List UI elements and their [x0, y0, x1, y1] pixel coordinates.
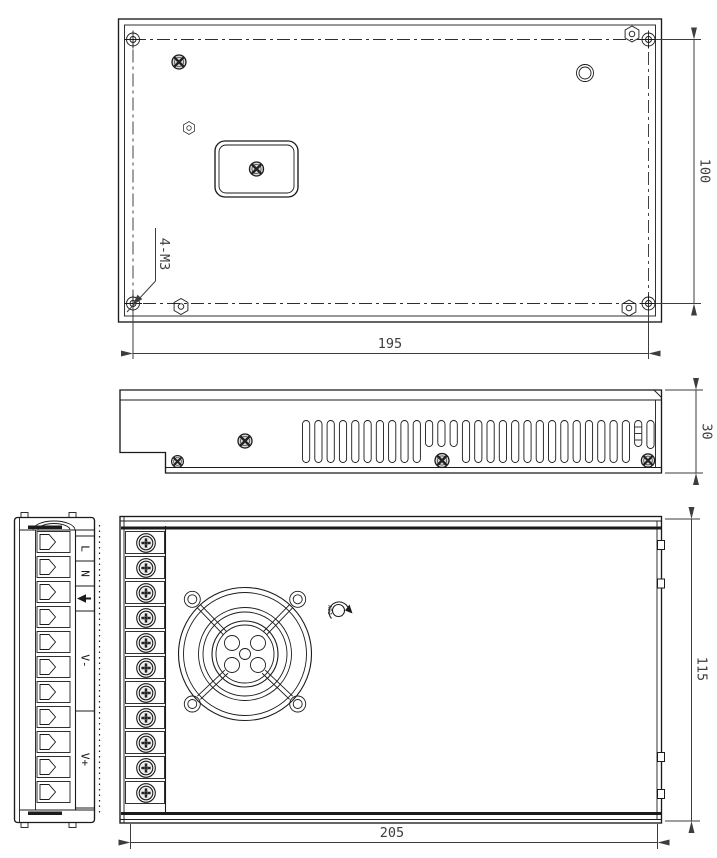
- terminal-clamp-cells: [37, 532, 70, 803]
- vent-slot: [475, 421, 482, 463]
- fan-hub-inner: [216, 625, 274, 683]
- terminal-label-line: L: [79, 545, 92, 552]
- fan-spoke: [265, 670, 293, 696]
- terminal-screw-icon: [137, 534, 156, 553]
- top-view-inner-edge: [125, 25, 656, 316]
- terminal-screw-icon: [137, 559, 156, 578]
- voltage-adjust-pot: ADJ: [326, 602, 353, 619]
- fan-hub-holes: [225, 636, 266, 673]
- dim-text-115: 115: [694, 657, 710, 681]
- front-view: ADJ: [120, 517, 665, 824]
- dim-text-100: 100: [697, 159, 713, 183]
- terminal-screw-icon: [137, 784, 156, 803]
- clip-tab: [658, 753, 665, 762]
- vent-slot: [315, 421, 322, 463]
- terminal-block-outline: [15, 518, 95, 823]
- terminal-label-strip: L N V- V+: [76, 530, 95, 810]
- psu-drawing: ADJ L N V- V+: [0, 0, 717, 858]
- vent-slot: [426, 421, 433, 447]
- terminal-label-vplus: V+: [79, 753, 92, 767]
- front-top-band: [121, 527, 661, 530]
- terminal-screw-icon: [137, 659, 156, 678]
- fan-guard: [179, 588, 312, 721]
- mounting-hole-icon: [640, 295, 658, 313]
- hex-nut-icon: [174, 299, 188, 315]
- vent-slot: [598, 421, 605, 463]
- terminal-clamp-wedge: [40, 660, 56, 675]
- terminal-block: L N V- V+: [15, 513, 100, 828]
- round-hole: [577, 65, 594, 82]
- mounting-hole-centerlines: [133, 40, 649, 304]
- fan-mount-ring: [188, 595, 197, 604]
- front-bottom-band: [121, 812, 661, 815]
- screw-icon: [435, 454, 449, 468]
- fan-mount-ring: [293, 595, 302, 604]
- dim-30: 30: [665, 390, 715, 473]
- terminal-screw-icon: [137, 634, 156, 653]
- vent-slot: [585, 421, 592, 463]
- terminal-screw-icon: [137, 734, 156, 753]
- top-view: [119, 19, 662, 322]
- vent-slot: [549, 421, 556, 463]
- vent-slot: [561, 421, 568, 463]
- vent-slot: [573, 421, 580, 463]
- terminal-clamp-wedge: [40, 535, 56, 550]
- vent-slot: [303, 421, 310, 463]
- label-cutout: [215, 141, 298, 197]
- potentiometer-icon: [333, 605, 345, 617]
- screw-icon: [250, 162, 264, 176]
- terminal-clamp-wedge: [40, 785, 56, 800]
- terminal-clamp-wedge: [40, 585, 56, 600]
- terminal-clamp-wedge: [40, 760, 56, 775]
- terminal-screw-icon: [137, 709, 156, 728]
- vent-slots: [303, 421, 655, 463]
- vent-slot: [622, 421, 629, 463]
- mounting-hole-icon: [124, 31, 142, 49]
- dim-205: 205: [131, 824, 658, 849]
- corner-mounting-holes: [124, 31, 658, 313]
- vent-slot: [487, 421, 494, 463]
- vent-slot: [462, 421, 469, 463]
- fan-mount-ring: [188, 700, 197, 709]
- terminal-top-tab: [69, 513, 76, 518]
- terminal-screw-icon: [137, 584, 156, 603]
- screw-icon: [641, 454, 654, 467]
- terminal-bottom-tab: [21, 823, 28, 828]
- terminal-label-vminus: V-: [79, 654, 92, 667]
- callout-4-M3: 4-M3: [127, 228, 172, 312]
- fan-spoke: [197, 670, 225, 696]
- terminal-clamp-wedge: [40, 710, 56, 725]
- vent-slot: [413, 421, 420, 463]
- vent-slot: [327, 421, 334, 463]
- top-view-outline: [119, 19, 662, 322]
- corner-chamfer-line: [654, 390, 662, 398]
- fan-mount-ring: [290, 591, 306, 607]
- screw-icon: [172, 456, 184, 468]
- vent-slot: [401, 421, 408, 463]
- hex-nut-icon: [622, 300, 636, 316]
- terminal-clamp-wedge: [40, 560, 56, 575]
- vent-slot: [647, 421, 654, 449]
- fan-guard-ring: [184, 593, 307, 716]
- vent-slot: [524, 421, 531, 463]
- fan-mount-ring: [184, 696, 200, 712]
- terminal-top-tab: [21, 513, 28, 518]
- ground-symbol: [77, 594, 91, 603]
- terminal-label-neutral: N: [79, 570, 92, 577]
- terminal-bottom-tab: [69, 823, 76, 828]
- terminal-screw-icon: [137, 609, 156, 628]
- drawing-sheet: ADJ L N V- V+: [0, 0, 717, 858]
- vent-slot: [352, 421, 359, 463]
- dim-text-195: 195: [378, 336, 402, 352]
- vent-slot: [536, 421, 543, 463]
- hex-standoff-icon: [183, 122, 194, 135]
- clip-tab: [658, 579, 665, 588]
- terminal-clamp-wedge: [40, 635, 56, 650]
- side-view: [120, 390, 662, 473]
- clip-tab: [658, 541, 665, 550]
- fan-hub-outline: [212, 621, 278, 687]
- vent-slot: [364, 421, 371, 463]
- vent-slot: [450, 421, 457, 447]
- dim-115: 115: [665, 519, 710, 821]
- terminal-clamp-wedge: [40, 735, 56, 750]
- terminal-screw-icon: [137, 759, 156, 778]
- dim-text-205: 205: [380, 825, 404, 841]
- vent-slot: [339, 421, 346, 463]
- rotation-arrowhead: [345, 605, 353, 614]
- dim-100: 100: [656, 40, 713, 304]
- fan-mount-ring: [290, 696, 306, 712]
- mounting-hole-icon: [640, 31, 658, 49]
- screw-icon: [238, 434, 252, 448]
- dim-text-4m3: 4-M3: [156, 238, 172, 271]
- dim-195: 195: [133, 311, 649, 359]
- vent-slot: [376, 421, 383, 463]
- fan-mount-ring: [293, 700, 302, 709]
- terminal-clamp-wedge: [40, 610, 56, 625]
- fan-guard-spokes: [197, 604, 293, 699]
- clip-tab: [658, 790, 665, 799]
- vent-slot: [610, 421, 617, 463]
- terminal-clamp-wedge: [40, 685, 56, 700]
- screw-icon: [172, 55, 186, 69]
- fan-mount-ring: [184, 591, 200, 607]
- adjust-label: ADJ: [326, 605, 332, 615]
- terminal-screws: [137, 534, 156, 803]
- terminal-bottom-band: [28, 812, 62, 816]
- dim-text-30: 30: [699, 423, 715, 439]
- vent-slot: [512, 421, 519, 463]
- vent-slot: [438, 421, 445, 447]
- terminal-screw-icon: [137, 684, 156, 703]
- vent-slot: [389, 421, 396, 463]
- vent-slot: [499, 421, 506, 463]
